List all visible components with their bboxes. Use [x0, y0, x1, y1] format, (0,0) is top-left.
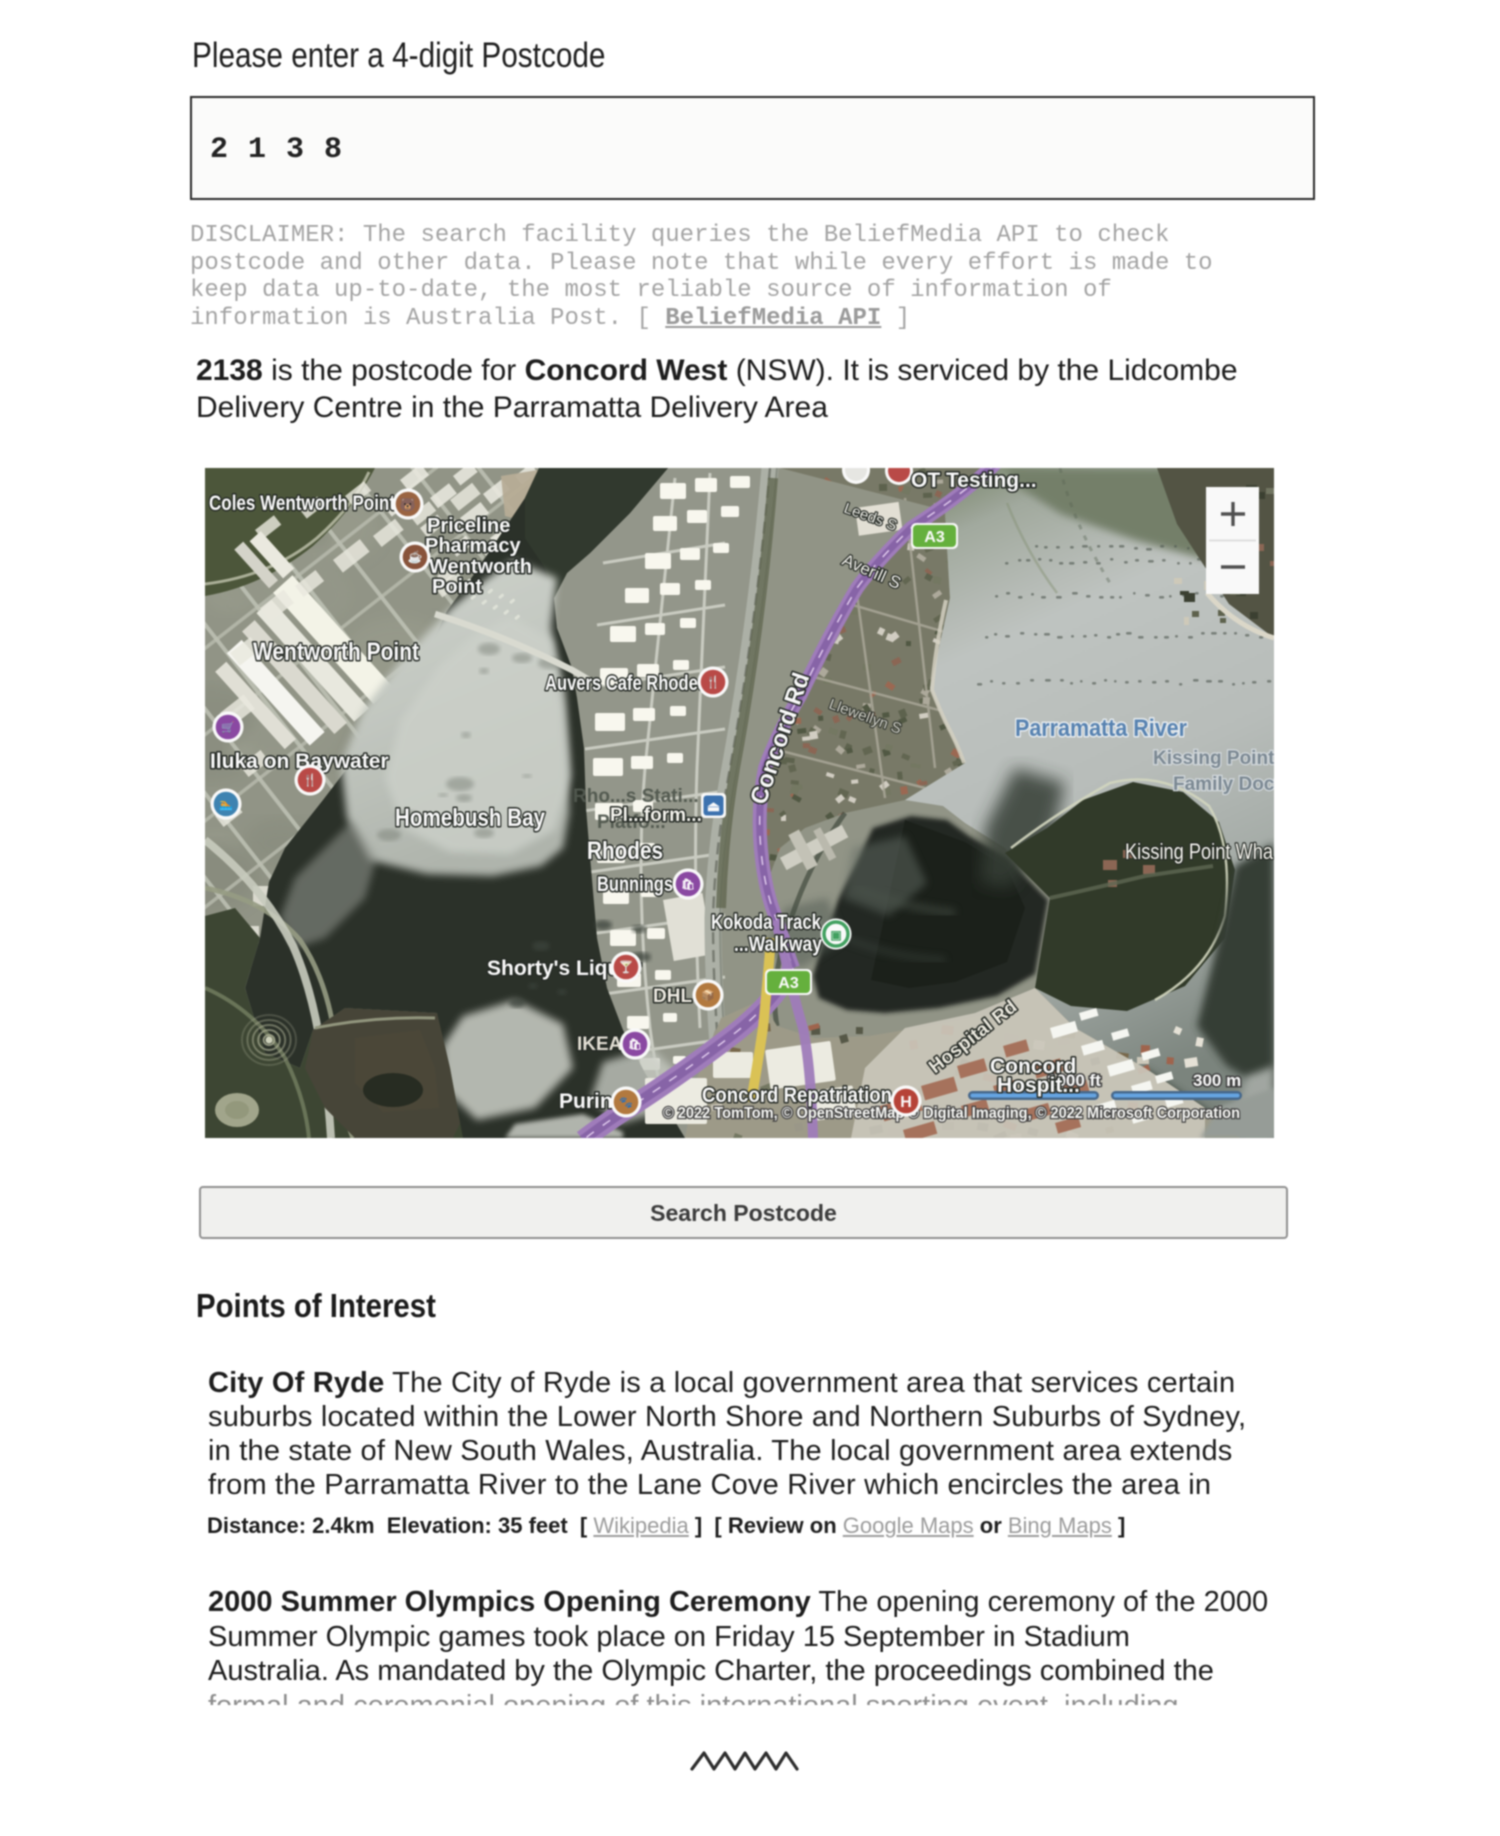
svg-text:Pl...form...: Pl...form... — [610, 805, 702, 826]
svg-text:Point: Point — [432, 576, 482, 598]
svg-text:Kissing Point Wha: Kissing Point Wha — [1125, 839, 1274, 864]
svg-text:© 2022 TomTom, © OpenStreetMap: © 2022 TomTom, © OpenStreetMap © Digital… — [663, 1105, 1240, 1122]
svg-text:Pharmacy: Pharmacy — [425, 535, 521, 557]
svg-text:A3: A3 — [778, 975, 799, 992]
svg-text:🛍: 🛍 — [681, 878, 695, 891]
svg-text:🍴: 🍴 — [303, 773, 318, 787]
svg-text:Family Docto: Family Docto — [1173, 774, 1274, 795]
svg-text:🐻: 🐻 — [400, 496, 416, 512]
svg-text:🛍: 🛍 — [628, 1038, 642, 1051]
svg-text:Hospit...: Hospit... — [997, 1074, 1080, 1097]
svg-text:Wentworth: Wentworth — [429, 556, 532, 578]
svg-text:⏏: ⏏ — [707, 798, 720, 814]
svg-text:🐾: 🐾 — [619, 1097, 633, 1109]
svg-text:Parramatta River: Parramatta River — [1015, 715, 1187, 742]
svg-text:Priceline: Priceline — [427, 515, 510, 537]
svg-text:Concord Repatriation: Concord Repatriation — [702, 1084, 892, 1107]
svg-text:Coles Wentworth Point: Coles Wentworth Point — [209, 492, 395, 515]
svg-text:Kokoda Track: Kokoda Track — [711, 911, 821, 934]
svg-text:🛒: 🛒 — [221, 721, 235, 734]
svg-text:A3: A3 — [924, 529, 945, 546]
svg-text:Kissing Point Roa: Kissing Point Roa — [1153, 748, 1274, 769]
svg-text:IKEA: IKEA — [577, 1034, 623, 1055]
svg-text:Bunnings: Bunnings — [597, 873, 673, 896]
svg-text:Rho...s Stati...: Rho...s Stati... — [573, 786, 699, 807]
svg-text:☕: ☕ — [408, 549, 423, 564]
svg-text:🏊: 🏊 — [219, 799, 233, 811]
svg-text:Wentworth Point: Wentworth Point — [253, 638, 420, 666]
svg-text:▣: ▣ — [830, 928, 841, 942]
svg-text:DHL: DHL — [653, 986, 692, 1007]
svg-text:OT Testing...: OT Testing... — [911, 469, 1037, 492]
svg-text:📦: 📦 — [701, 989, 715, 1002]
svg-text:...Walkway: ...Walkway — [734, 933, 822, 956]
svg-text:🍸: 🍸 — [619, 959, 634, 974]
svg-text:H: H — [900, 1094, 912, 1111]
svg-text:Homebush Bay: Homebush Bay — [395, 804, 545, 832]
svg-text:Rhodes: Rhodes — [587, 837, 663, 865]
svg-text:300 m: 300 m — [1193, 1071, 1241, 1090]
svg-text:🍴: 🍴 — [706, 675, 721, 689]
svg-text:Auvers Cafe Rhodes: Auvers Cafe Rhodes — [545, 672, 707, 695]
